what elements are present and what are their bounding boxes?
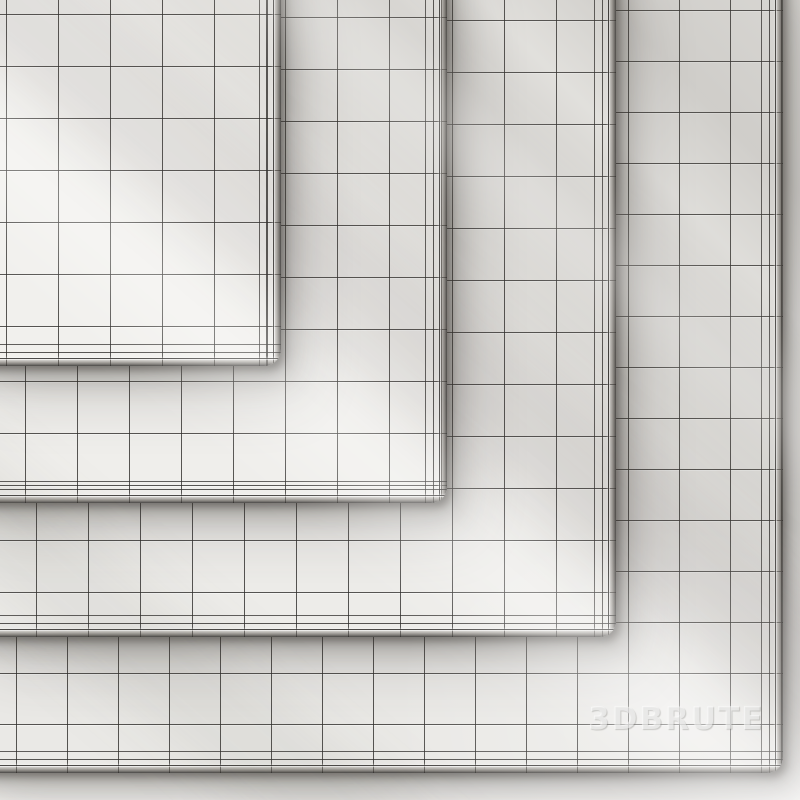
- rug-edge-bottom: [0, 469, 447, 503]
- wireframe-rug-1: [0, 0, 281, 366]
- rug-edge-right: [413, 0, 447, 503]
- rug-edge-bottom: [0, 332, 281, 366]
- rug-edge-bottom: [0, 739, 783, 773]
- rug-edge-right: [749, 0, 783, 773]
- render-canvas: 3DBRUTE: [0, 0, 800, 800]
- rug-edge-right: [247, 0, 281, 366]
- rug-edge-bottom: [0, 603, 616, 637]
- rug-edge-right: [582, 0, 616, 637]
